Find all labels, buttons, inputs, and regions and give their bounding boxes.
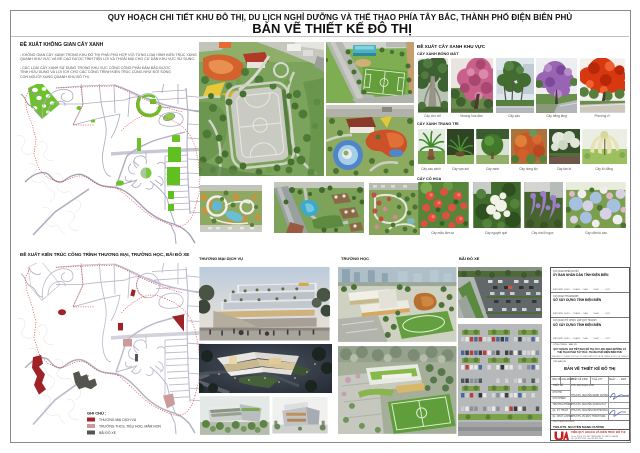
svg-text:BÃI ĐỖ XE: BÃI ĐỖ XE <box>99 430 117 435</box>
svg-text:TRƯỜNG THCS, TIỂU HỌC, MẦM NON: TRƯỜNG THCS, TIỂU HỌC, MẦM NON <box>99 424 161 429</box>
svg-text:GHI CHÚ :: GHI CHÚ : <box>87 411 106 416</box>
svg-text:THƯƠNG MẠI DỊCH VỤ: THƯƠNG MẠI DỊCH VỤ <box>99 418 137 422</box>
